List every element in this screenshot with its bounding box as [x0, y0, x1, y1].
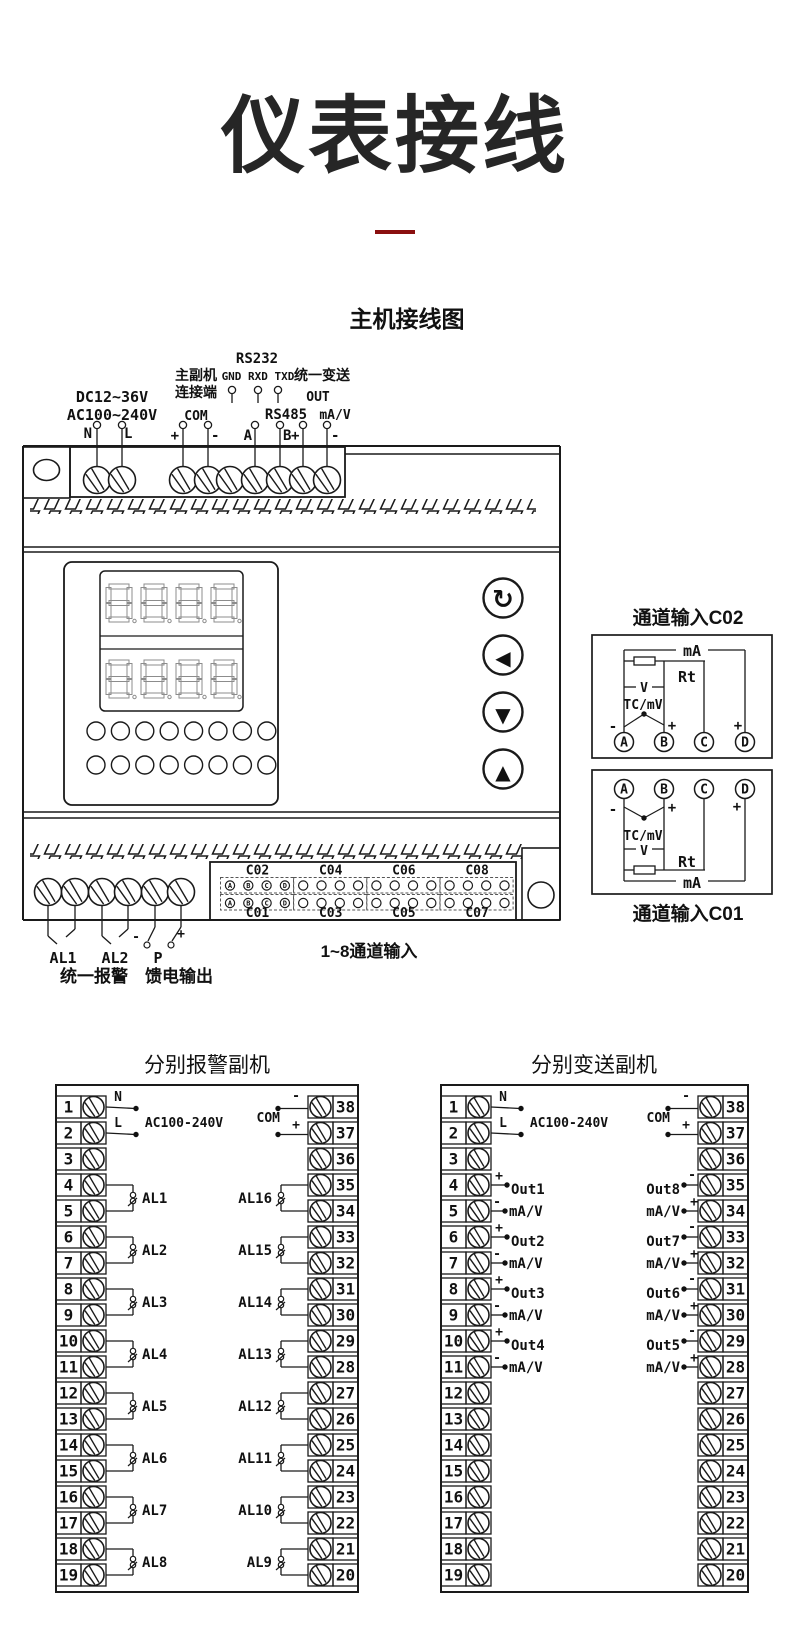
switch-contact: [278, 1296, 283, 1301]
terminal-number: 31: [336, 1280, 355, 1299]
connector-pin: [299, 898, 308, 907]
switch-contact: [278, 1348, 283, 1353]
c02-plus-right: +: [734, 718, 742, 734]
relay-label: AL10: [238, 1503, 272, 1519]
feed-output-caption: 馈电输出: [145, 966, 213, 986]
rs232-pin-circle: [254, 386, 261, 393]
junction-dot: [518, 1106, 523, 1111]
c01-tc: TC/mV: [623, 829, 662, 844]
terminal-number: 4: [64, 1176, 74, 1195]
switch-contact: [130, 1400, 135, 1405]
terminal-number: 2: [449, 1124, 459, 1143]
channel-pin-letter: A: [620, 783, 628, 798]
terminal-number: 24: [726, 1462, 745, 1481]
terminal-number: 24: [336, 1462, 355, 1481]
wire: [148, 927, 155, 941]
c02-plus: +: [668, 718, 676, 734]
resistor-symbol: [634, 657, 655, 665]
terminal-number: 30: [336, 1306, 355, 1325]
vent-band: [30, 844, 522, 859]
led-indicator: [185, 722, 203, 740]
wire: [106, 1107, 135, 1109]
seven-seg-segment: [214, 617, 234, 622]
terminal-number: 37: [336, 1124, 355, 1143]
com-minus: -: [682, 1089, 690, 1104]
terminal-number: 7: [64, 1254, 74, 1273]
switch-contact: [130, 1452, 135, 1457]
wiring-diagram: C02C01AABBCCDDC04C03C06C05C08C07ABCDABCD…: [0, 0, 790, 1650]
seven-seg-dot: [168, 695, 171, 698]
output-label: Out5: [646, 1338, 680, 1354]
wire: [48, 936, 57, 944]
output-label: Out3: [511, 1286, 545, 1302]
connector-pin: [408, 881, 417, 890]
terminal-number: 12: [59, 1384, 78, 1403]
terminal-number: 8: [64, 1280, 74, 1299]
out-minus: -: [493, 1247, 501, 1262]
terminal-number: 4: [449, 1176, 459, 1195]
relay-label: AL6: [142, 1451, 167, 1467]
seven-seg-dot: [133, 695, 136, 698]
terminal-number: 31: [726, 1280, 745, 1299]
out-plus: +: [495, 1169, 503, 1184]
relay-label: AL16: [238, 1191, 272, 1207]
wire: [66, 929, 75, 937]
c02-rt: Rt: [678, 668, 696, 686]
terminal-number: 15: [444, 1462, 463, 1481]
channel-pin-letter: A: [620, 736, 628, 751]
junction-dot: [681, 1286, 686, 1291]
pin-n: N: [84, 426, 92, 442]
connector-group-label: C07: [465, 906, 488, 921]
junction-dot: [681, 1182, 686, 1187]
mounting-hole: [34, 460, 60, 481]
terminal-number: 23: [726, 1488, 745, 1507]
cycle-icon: ↻: [492, 585, 514, 615]
switch-contact: [130, 1556, 135, 1561]
relay-label: AL8: [142, 1555, 167, 1571]
wire: [491, 1133, 520, 1135]
led-indicator: [136, 756, 154, 774]
signal-label: mA/V: [646, 1204, 680, 1220]
switch-contact: [278, 1244, 283, 1249]
connector-pin: [317, 881, 326, 890]
connector-pin: [463, 881, 472, 890]
gnd-rxd-txd-label: GND RXD TXD: [222, 370, 295, 383]
seven-seg-segment: [214, 660, 234, 665]
terminal-number: 13: [444, 1410, 463, 1429]
output-label: Out4: [511, 1338, 545, 1354]
c01-rt: Rt: [678, 853, 696, 871]
rs232-pin-circle: [228, 386, 235, 393]
link-label-2: 连接端: [175, 384, 217, 400]
mounting-ear: [23, 447, 70, 498]
junction-dot: [504, 1234, 509, 1239]
terminal-number: 3: [64, 1150, 74, 1169]
terminal-number: 32: [336, 1254, 355, 1273]
switch-contact: [130, 1244, 135, 1249]
terminal-number: 7: [449, 1254, 459, 1273]
out-plus: +: [690, 1247, 698, 1262]
seven-seg-segment: [109, 693, 129, 698]
c02-minus: -: [609, 719, 617, 735]
junction-dot: [502, 1208, 507, 1213]
com-plus: +: [682, 1118, 690, 1133]
switch-contact: [130, 1348, 135, 1353]
terminal-number: 3: [449, 1150, 459, 1169]
down-arrow-icon: ▼: [495, 703, 511, 727]
led-indicator: [233, 756, 251, 774]
seven-seg-segment: [109, 617, 129, 622]
al2-label: AL2: [101, 949, 128, 967]
seven-seg-segment: [144, 601, 164, 606]
c01-plus: +: [668, 800, 676, 816]
connector-pin-letter: C: [264, 882, 268, 890]
terminal-number: 32: [726, 1254, 745, 1273]
c01-ma: mA: [683, 874, 701, 892]
terminal-number: 17: [444, 1514, 463, 1533]
terminal-number: 15: [59, 1462, 78, 1481]
led-indicator: [87, 756, 105, 774]
seven-seg-dot: [203, 695, 206, 698]
seven-seg-segment: [214, 693, 234, 698]
junction-dot: [641, 815, 646, 820]
channel-pin-letter: B: [660, 736, 668, 751]
terminal-number: 18: [444, 1540, 463, 1559]
wire: [644, 714, 664, 725]
led-indicator: [185, 756, 203, 774]
com-minus: -: [292, 1089, 300, 1104]
wiring-page: { "page": { "title": "仪表接线", "accent_col…: [0, 0, 790, 1650]
out-label: OUT: [306, 390, 330, 405]
p-label: P: [153, 949, 162, 967]
c01-plus-right: +: [733, 799, 741, 815]
terminal-number: 11: [444, 1358, 463, 1377]
display-window: [100, 571, 243, 711]
connector-pin: [335, 898, 344, 907]
seven-seg-segment: [179, 660, 199, 665]
channel-pin-letter: D: [741, 736, 749, 751]
wire: [624, 807, 644, 818]
seven-seg-dot: [133, 619, 136, 622]
junction-dot: [133, 1106, 138, 1111]
terminal-number: 16: [59, 1488, 78, 1507]
switch-contact: [278, 1452, 283, 1457]
signal-label: mA/V: [509, 1204, 543, 1220]
led-indicator: [87, 722, 105, 740]
seven-seg-segment: [144, 677, 164, 682]
seven-seg-segment: [144, 584, 164, 589]
junction-dot: [502, 1312, 507, 1317]
terminal-number: 34: [336, 1202, 355, 1221]
seven-seg-segment: [179, 677, 199, 682]
terminal-number: 22: [726, 1514, 745, 1533]
unified-alarm-caption: 统一报警: [60, 966, 128, 986]
transmit-unit-title: 分别变送副机: [531, 1053, 657, 1077]
junction-dot: [275, 1132, 280, 1137]
connector-pin: [445, 881, 454, 890]
pin-minus2: -: [331, 428, 339, 444]
n-label: N: [499, 1090, 507, 1105]
terminal-number: 35: [336, 1176, 355, 1195]
terminal-number: 20: [726, 1566, 745, 1585]
out-minus: -: [493, 1351, 501, 1366]
terminal-number: 30: [726, 1306, 745, 1325]
out-plus: +: [495, 1325, 503, 1340]
out-plus: +: [495, 1221, 503, 1236]
relay-label: AL12: [238, 1399, 272, 1415]
terminal-number: 25: [336, 1436, 355, 1455]
connector-group-label: C08: [465, 864, 489, 879]
dc-supply-label: DC12~36V: [76, 388, 148, 406]
seven-seg-segment: [144, 660, 164, 665]
terminal-number: 26: [726, 1410, 745, 1429]
link-label-1: 主副机: [175, 367, 217, 383]
terminal-number: 14: [59, 1436, 78, 1455]
rs232-label: RS232: [236, 351, 278, 367]
terminal-number: 28: [726, 1358, 745, 1377]
relay-label: AL14: [238, 1295, 272, 1311]
out-plus: +: [690, 1299, 698, 1314]
feed-minus: -: [132, 930, 140, 945]
terminal-number: 21: [726, 1540, 745, 1559]
connector-pin: [500, 881, 509, 890]
junction-dot: [665, 1132, 670, 1137]
output-label: Out2: [511, 1234, 545, 1250]
terminal-number: 27: [336, 1384, 355, 1403]
switch-contact: [278, 1504, 283, 1509]
output-label: Out6: [646, 1286, 680, 1302]
switch-contact: [130, 1504, 135, 1509]
pin-a: A: [244, 428, 253, 444]
terminal-number: 19: [59, 1566, 78, 1585]
up-arrow-icon: ▲: [495, 760, 511, 784]
connector-pin: [372, 898, 381, 907]
connector-pin: [408, 898, 417, 907]
terminal-number: 1: [449, 1098, 459, 1117]
connector-pin-letter: B: [246, 900, 250, 908]
signal-label: mA/V: [646, 1360, 680, 1376]
connector-pin: [335, 881, 344, 890]
out-plus: +: [690, 1195, 698, 1210]
terminal-number: 6: [449, 1228, 459, 1247]
junction-dot: [502, 1364, 507, 1369]
c01-v: V: [640, 844, 648, 859]
n-label: N: [114, 1090, 122, 1105]
channel-pin-letter: C: [700, 783, 708, 798]
junction-dot: [681, 1234, 686, 1239]
junction-dot: [681, 1364, 686, 1369]
connector-pin: [482, 881, 491, 890]
wire: [106, 1133, 135, 1135]
pin-circle: [144, 942, 150, 948]
terminal-number: 36: [726, 1150, 745, 1169]
relay-label: AL4: [142, 1347, 167, 1363]
l-label: L: [114, 1116, 122, 1131]
terminal-number: 25: [726, 1436, 745, 1455]
connector-group-label: C05: [392, 906, 415, 921]
connector-pin: [427, 881, 436, 890]
terminal-number: 33: [726, 1228, 745, 1247]
led-indicator: [258, 722, 276, 740]
wire: [119, 929, 128, 937]
c02-v: V: [640, 681, 648, 696]
connector-group-label: C04: [319, 864, 343, 879]
seven-seg-segment: [214, 677, 234, 682]
terminal-number: 5: [449, 1202, 459, 1221]
wire: [491, 1107, 520, 1109]
diagram-geometry: C02C01AABBCCDDC04C03C06C05C08C07ABCDABCD…: [23, 386, 772, 1592]
l-label: L: [499, 1116, 507, 1131]
terminal-number: 14: [444, 1436, 463, 1455]
signal-label: mA/V: [509, 1360, 543, 1376]
seven-seg-dot: [238, 619, 241, 622]
seven-seg-segment: [179, 617, 199, 622]
pin-circle: [168, 942, 174, 948]
channels-caption: 1~8通道输入: [321, 941, 418, 961]
switch-contact: [130, 1296, 135, 1301]
connector-pin: [445, 898, 454, 907]
channel-pin-letter: D: [741, 783, 749, 798]
ac-supply-label: AC100~240V: [67, 406, 157, 424]
junction-dot: [681, 1312, 686, 1317]
switch-contact: [278, 1556, 283, 1561]
terminal-number: 6: [64, 1228, 74, 1247]
led-indicator: [111, 756, 129, 774]
seven-seg-segment: [109, 677, 129, 682]
junction-dot: [518, 1132, 523, 1137]
connector-group-label: C06: [392, 864, 416, 879]
com-label: COM: [184, 409, 208, 424]
terminal-number: 5: [64, 1202, 74, 1221]
terminal-number: 26: [336, 1410, 355, 1429]
led-indicator: [160, 756, 178, 774]
junction-dot: [133, 1132, 138, 1137]
terminal-number: 11: [59, 1358, 78, 1377]
connector-pin-letter: D: [283, 882, 287, 890]
connector-pin: [372, 881, 381, 890]
wire: [644, 807, 664, 818]
out-plus: +: [495, 1273, 503, 1288]
terminal-number: 29: [336, 1332, 355, 1351]
al1-label: AL1: [49, 949, 76, 967]
relay-label: AL9: [247, 1555, 272, 1571]
left-arrow-icon: ◀: [495, 646, 511, 670]
connector-pin: [299, 881, 308, 890]
terminal-number: 38: [726, 1098, 745, 1117]
out-minus: -: [493, 1195, 501, 1210]
seven-seg-segment: [179, 584, 199, 589]
seven-seg-dot: [238, 695, 241, 698]
seven-seg-dot: [168, 619, 171, 622]
connector-pin-letter: D: [283, 900, 287, 908]
relay-label: AL7: [142, 1503, 167, 1519]
seven-seg-segment: [144, 693, 164, 698]
connector-pin: [482, 898, 491, 907]
terminal-number: 8: [449, 1280, 459, 1299]
terminal-number: 36: [336, 1150, 355, 1169]
pin-circle: [251, 421, 258, 428]
led-indicator: [233, 722, 251, 740]
unified-transmit-label: 统一变送: [294, 367, 351, 383]
com-label: COM: [257, 1111, 281, 1126]
relay-label: AL1: [142, 1191, 167, 1207]
led-indicator: [136, 722, 154, 740]
out-minus: -: [688, 1168, 696, 1183]
seven-seg-segment: [214, 584, 234, 589]
terminal-number: 10: [444, 1332, 463, 1351]
seven-seg-segment: [214, 601, 234, 606]
output-label: Out8: [646, 1182, 680, 1198]
seven-seg-segment: [109, 601, 129, 606]
wire: [624, 714, 644, 727]
relay-label: AL5: [142, 1399, 167, 1415]
out-minus: -: [688, 1324, 696, 1339]
channel-c01-title: 通道输入C01: [633, 902, 744, 925]
terminal-number: 18: [59, 1540, 78, 1559]
channel-pin-letter: C: [700, 736, 708, 751]
terminal-number: 37: [726, 1124, 745, 1143]
relay-label: AL2: [142, 1243, 167, 1259]
terminal-number: 13: [59, 1410, 78, 1429]
c01-minus: -: [609, 802, 617, 818]
ac-supply-label: AC100-240V: [145, 1116, 223, 1131]
signal-label: mA/V: [509, 1308, 543, 1324]
junction-dot: [681, 1208, 686, 1213]
terminal-number: 16: [444, 1488, 463, 1507]
terminal-number: 9: [449, 1306, 459, 1325]
connector-pin: [354, 881, 363, 890]
terminal-number: 1: [64, 1098, 74, 1117]
led-indicator: [160, 722, 178, 740]
rs485-label: RS485: [265, 407, 307, 423]
out-minus: -: [493, 1299, 501, 1314]
terminal-number: 33: [336, 1228, 355, 1247]
main-subtitle: 主机接线图: [350, 306, 465, 332]
connector-pin: [500, 898, 509, 907]
terminal-number: 17: [59, 1514, 78, 1533]
side-hole: [528, 882, 554, 908]
led-indicator: [209, 722, 227, 740]
junction-dot: [681, 1260, 686, 1265]
connector-pin: [463, 898, 472, 907]
rs232-pin-circle: [274, 386, 281, 393]
seven-seg-segment: [109, 584, 129, 589]
signal-label: mA/V: [646, 1308, 680, 1324]
junction-dot: [681, 1338, 686, 1343]
out-minus: -: [688, 1272, 696, 1287]
output-label: Out7: [646, 1234, 680, 1250]
connector-group-label: C02: [246, 864, 269, 879]
junction-dot: [504, 1182, 509, 1187]
seven-seg-segment: [179, 601, 199, 606]
terminal-number: 9: [64, 1306, 74, 1325]
terminal-number: 19: [444, 1566, 463, 1585]
relay-label: AL15: [238, 1243, 272, 1259]
terminal-number: 35: [726, 1176, 745, 1195]
led-indicator: [209, 756, 227, 774]
seven-seg-segment: [144, 617, 164, 622]
connector-pin-letter: C: [264, 900, 268, 908]
junction-dot: [502, 1260, 507, 1265]
c02-tc: TC/mV: [623, 698, 662, 713]
terminal-number: 23: [336, 1488, 355, 1507]
resistor-symbol: [634, 866, 655, 874]
terminal-number: 20: [336, 1566, 355, 1585]
out-minus: -: [688, 1220, 696, 1235]
channel-c02-title: 通道输入C02: [633, 606, 744, 629]
pin-plus2: +: [291, 428, 299, 444]
